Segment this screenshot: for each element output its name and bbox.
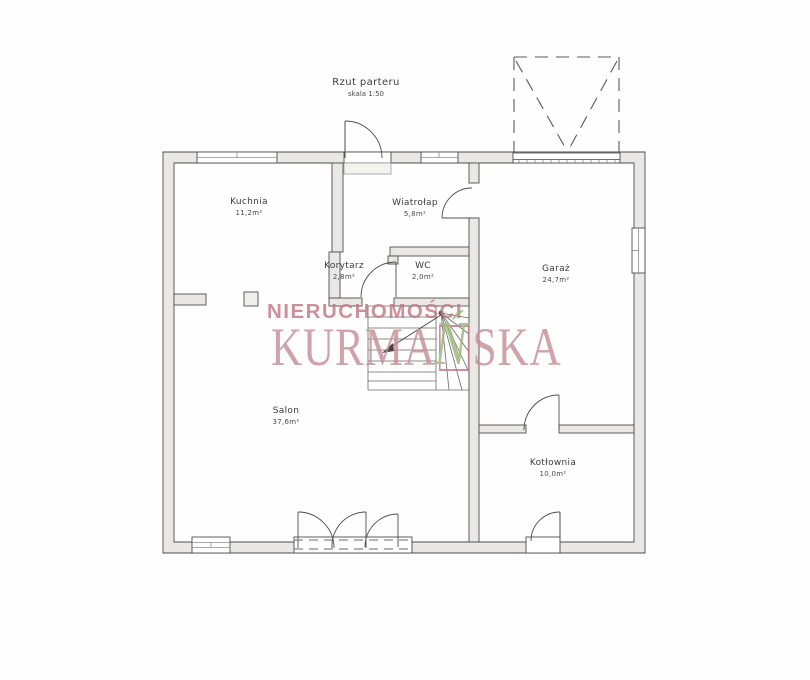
watermark-accent-letter: Ń bbox=[434, 313, 468, 375]
watermark-line2: KURMAŃSKA bbox=[271, 319, 561, 375]
kotlownia-garage-door bbox=[524, 395, 559, 430]
room-label-kotlownia: Kotłownia 10,0m² bbox=[498, 458, 608, 478]
plan-scale-text: skala 1:50 bbox=[296, 90, 436, 98]
watermark-accent-box: Ń bbox=[439, 325, 469, 371]
room-label-wc: WC 2,0m² bbox=[368, 261, 478, 281]
garage-right-window bbox=[632, 228, 645, 273]
plan-title-text: Rzut parteru bbox=[296, 77, 436, 88]
garage-door-hatch bbox=[513, 152, 620, 163]
room-name: WC bbox=[368, 261, 478, 271]
room-label-kuchnia: Kuchnia 11,2m² bbox=[194, 197, 304, 217]
floor-plan-page: Rzut parteru skala 1:50 Kuchnia 11,2m² W… bbox=[0, 0, 810, 680]
room-area: 5,8m² bbox=[360, 210, 470, 218]
room-area: 10,0m² bbox=[498, 470, 608, 478]
watermark-line2-suffix: SKA bbox=[473, 317, 562, 377]
garage-roof-dashed-outline bbox=[514, 57, 619, 152]
room-label-garaz: Garaż 24,7m² bbox=[501, 264, 611, 284]
wiatrolap-window bbox=[421, 152, 458, 163]
room-label-wiatrolap: Wiatrołap 5,8m² bbox=[360, 198, 470, 218]
entrance-door bbox=[344, 121, 391, 174]
room-name: Kuchnia bbox=[194, 197, 304, 207]
room-label-salon: Salon 37,6m² bbox=[231, 406, 341, 426]
kotlownia-exterior-door bbox=[526, 512, 560, 553]
room-area: 37,6m² bbox=[231, 418, 341, 426]
kitchen-window bbox=[197, 152, 277, 163]
watermark-line2-prefix: KURMA bbox=[271, 317, 436, 377]
room-area: 11,2m² bbox=[194, 209, 304, 217]
salon-bottom-window bbox=[192, 537, 230, 553]
room-area: 24,7m² bbox=[501, 276, 611, 284]
plan-title: Rzut parteru skala 1:50 bbox=[296, 77, 436, 98]
room-name: Wiatrołap bbox=[360, 198, 470, 208]
room-name: Salon bbox=[231, 406, 341, 416]
french-doors bbox=[294, 512, 412, 553]
room-name: Garaż bbox=[501, 264, 611, 274]
room-name: Kotłownia bbox=[498, 458, 608, 468]
room-area: 2,0m² bbox=[368, 273, 478, 281]
